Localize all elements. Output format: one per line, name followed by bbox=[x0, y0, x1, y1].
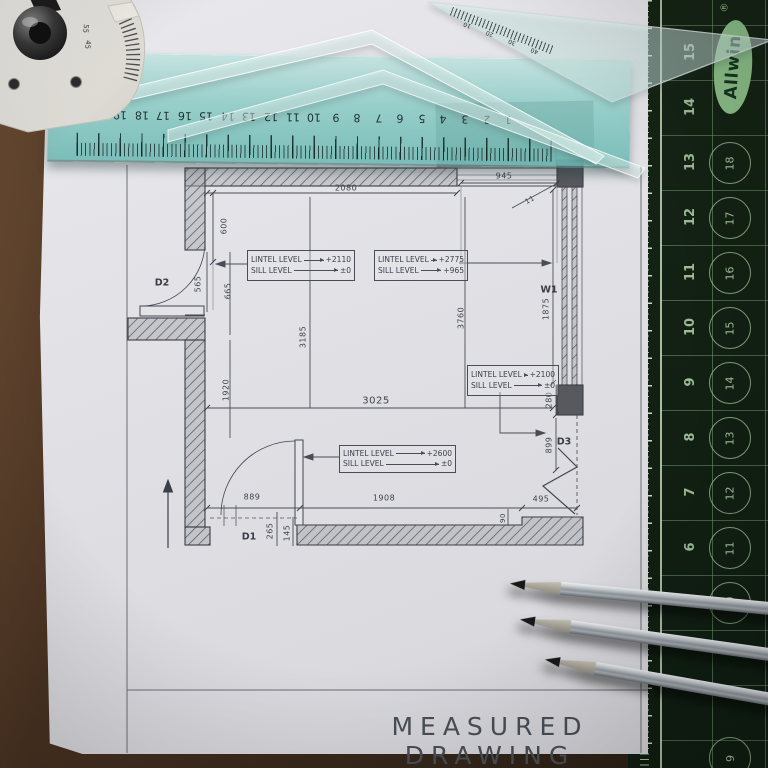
sill-label: SILL LEVEL bbox=[378, 266, 419, 276]
level-box-1: LINTEL LEVEL+2110 SILL LEVEL±0 bbox=[247, 250, 355, 281]
sill-label: SILL LEVEL bbox=[471, 381, 512, 391]
screw bbox=[9, 79, 20, 90]
level-box-3: LINTEL LEVEL+2100 SILL LEVEL±0 bbox=[467, 365, 559, 396]
set-square-scale-number: 40 bbox=[530, 46, 540, 55]
photo-scene: 15 14 13 12 11 10 9 8 7 6 5 18 17 16 15 … bbox=[0, 0, 768, 768]
door-d3-bifold bbox=[543, 415, 577, 515]
lintel-label: LINTEL LEVEL bbox=[471, 370, 522, 380]
set-square-edge-2 bbox=[168, 70, 645, 178]
pencil-lead-tip bbox=[519, 613, 536, 628]
lintel-label: LINTEL LEVEL bbox=[251, 255, 302, 265]
sill-value: +965 bbox=[443, 266, 464, 276]
set-square-scale-number: 30 bbox=[507, 37, 517, 46]
pencil-lead-tip bbox=[544, 653, 561, 668]
adjustable-protractor: 55 45 bbox=[0, 0, 190, 150]
lintel-value: +2775 bbox=[439, 255, 464, 265]
protractor-angle: 55 bbox=[81, 24, 90, 34]
set-square-scale-number: 10 bbox=[463, 20, 473, 29]
screw bbox=[71, 77, 82, 88]
set-square-scale-number: 20 bbox=[485, 29, 495, 38]
drawing-title: MEASURED DRAWING bbox=[330, 712, 650, 768]
sill-label: SILL LEVEL bbox=[343, 459, 384, 469]
protractor-angle: 45 bbox=[83, 40, 92, 50]
door-d2 bbox=[140, 242, 205, 316]
lintel-label: LINTEL LEVEL bbox=[378, 255, 429, 265]
sill-value: ±0 bbox=[544, 381, 555, 391]
lintel-value: +2110 bbox=[326, 255, 351, 265]
level-box-4: LINTEL LEVEL+2600 SILL LEVEL±0 bbox=[339, 445, 456, 473]
entry-arrow bbox=[164, 480, 173, 548]
sill-value: ±0 bbox=[441, 459, 452, 469]
sill-label: SILL LEVEL bbox=[251, 266, 292, 276]
pencil-lead-tip bbox=[509, 577, 525, 591]
door-d1 bbox=[221, 440, 303, 526]
lintel-label: LINTEL LEVEL bbox=[343, 449, 394, 459]
lintel-value: +2100 bbox=[530, 370, 555, 380]
leader-lines bbox=[216, 260, 551, 460]
lintel-value: +2600 bbox=[427, 449, 452, 459]
level-box-2: LINTEL LEVEL+2775 SILL LEVEL+965 bbox=[374, 250, 468, 281]
knob-highlight bbox=[22, 17, 38, 27]
sill-value: ±0 bbox=[340, 266, 351, 276]
